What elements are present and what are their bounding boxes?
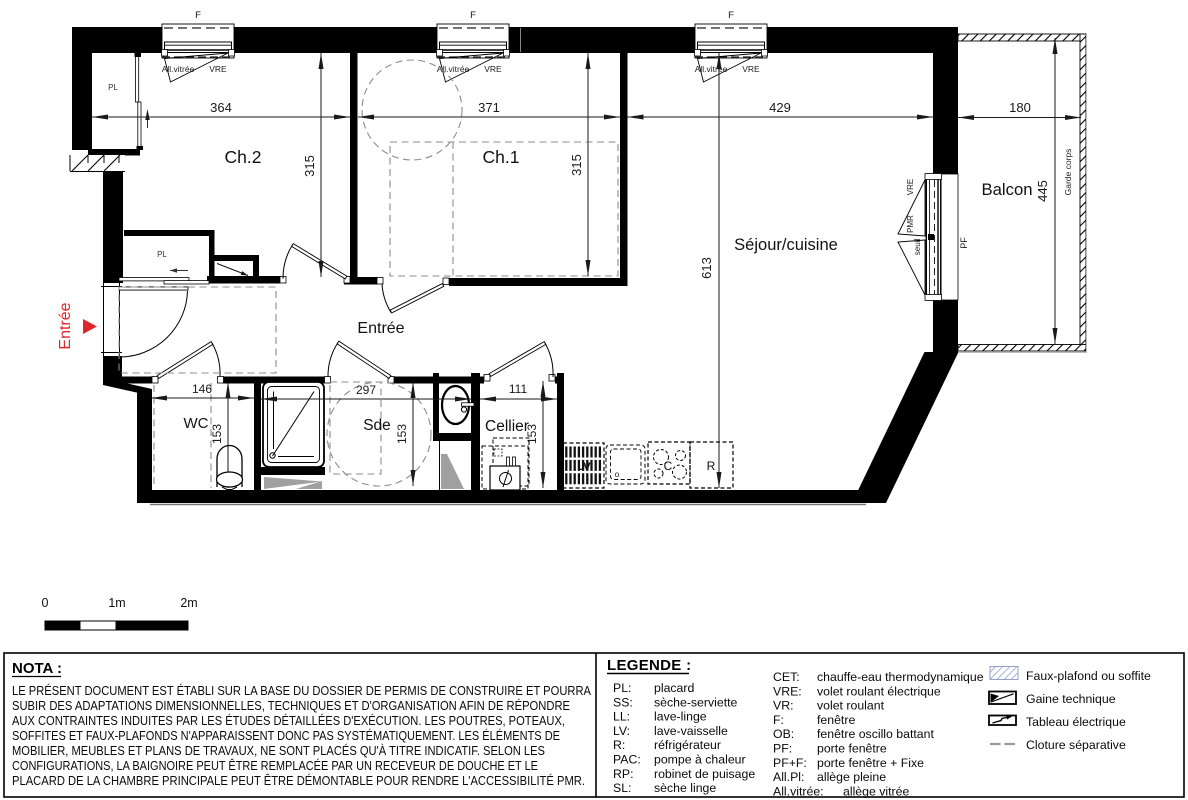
- svg-text:0: 0: [42, 596, 49, 610]
- svg-text:AUX CONTRAINTES INDUITES PAR L: AUX CONTRAINTES INDUITES PAR LES ÉTUDES …: [12, 713, 565, 728]
- svg-text:allège pleine: allège pleine: [817, 770, 886, 784]
- svg-text:429: 429: [769, 100, 791, 115]
- svg-text:180: 180: [1009, 100, 1031, 115]
- svg-text:R: R: [707, 459, 716, 473]
- svg-text:F: F: [728, 10, 734, 21]
- svg-text:F: F: [470, 10, 476, 21]
- svg-text:chauffe-eau thermodynamique: chauffe-eau thermodynamique: [817, 670, 984, 684]
- svg-text:NOTA :: NOTA :: [12, 660, 62, 677]
- svg-text:VR:: VR:: [773, 699, 794, 713]
- svg-text:Entrée: Entrée: [57, 302, 74, 349]
- svg-text:Balcon: Balcon: [981, 180, 1032, 199]
- svg-text:allège vitrée: allège vitrée: [843, 784, 909, 798]
- svg-text:Ch.2: Ch.2: [225, 147, 262, 167]
- svg-text:MOBILIER, MEUBLES ET PLANS DE: MOBILIER, MEUBLES ET PLANS DE TRAVAUX, N…: [12, 743, 545, 758]
- svg-text:315: 315: [302, 155, 317, 177]
- svg-text:2m: 2m: [180, 596, 197, 610]
- svg-text:PAC:: PAC:: [613, 753, 641, 767]
- svg-text:315: 315: [569, 154, 584, 176]
- svg-text:volet roulant: volet roulant: [817, 699, 885, 713]
- svg-text:111: 111: [509, 382, 528, 396]
- svg-text:pompe à chaleur: pompe à chaleur: [654, 753, 746, 767]
- svg-text:PL:: PL:: [613, 681, 631, 695]
- svg-text:PMR: PMR: [906, 215, 915, 233]
- svg-text:SL:: SL:: [613, 781, 631, 795]
- svg-text:SOFFITES ET FAUX-PLAFONDS N'AP: SOFFITES ET FAUX-PLAFONDS N'APPARAISSENT…: [12, 728, 560, 743]
- svg-text:LE PRÉSENT DOCUMENT EST ÉTABLI: LE PRÉSENT DOCUMENT EST ÉTABLI SUR LA BA…: [12, 683, 592, 698]
- svg-text:PL: PL: [108, 83, 118, 92]
- svg-text:Cellier: Cellier: [485, 418, 529, 435]
- svg-text:volet roulant électrique: volet roulant électrique: [817, 684, 941, 698]
- svg-text:Gaine technique: Gaine technique: [1026, 692, 1116, 706]
- svg-text:OB:: OB:: [773, 727, 794, 741]
- svg-text:C: C: [664, 459, 673, 473]
- svg-text:364: 364: [210, 100, 232, 115]
- svg-text:PLACARD DE LA CHAMBRE PRINCIPA: PLACARD DE LA CHAMBRE PRINCIPALE PEUT ÊT…: [12, 773, 585, 788]
- svg-text:445: 445: [1035, 180, 1050, 202]
- svg-text:153: 153: [210, 424, 224, 444]
- svg-text:LV:: LV:: [613, 724, 630, 738]
- svg-text:153: 153: [395, 424, 409, 444]
- svg-text:fenêtre: fenêtre: [817, 713, 855, 727]
- svg-text:réfrigérateur: réfrigérateur: [654, 738, 721, 752]
- svg-text:PF+F:: PF+F:: [773, 756, 807, 770]
- svg-text:PL: PL: [157, 250, 167, 259]
- svg-text:SS:: SS:: [613, 695, 633, 709]
- svg-text:Cloture séparative: Cloture séparative: [1026, 738, 1126, 752]
- svg-text:F:: F:: [773, 713, 784, 727]
- svg-text:sèche linge: sèche linge: [654, 781, 716, 795]
- svg-text:Garde corps: Garde corps: [1063, 149, 1073, 196]
- svg-text:fenêtre oscillo battant: fenêtre oscillo battant: [817, 727, 934, 741]
- svg-text:Entrée: Entrée: [357, 320, 404, 337]
- svg-text:sèche-serviette: sèche-serviette: [654, 695, 738, 709]
- svg-text:R:: R:: [613, 738, 625, 752]
- svg-text:o: o: [615, 470, 620, 479]
- svg-text:lave-linge: lave-linge: [654, 710, 707, 724]
- svg-text:seuil: seuil: [913, 239, 922, 256]
- svg-text:297: 297: [356, 383, 376, 397]
- svg-text:RP:: RP:: [613, 767, 634, 781]
- svg-text:placard: placard: [654, 681, 694, 695]
- svg-text:F: F: [195, 10, 201, 21]
- svg-text:All.vitrée:: All.vitrée:: [773, 784, 824, 798]
- svg-text:porte fenêtre + Fixe: porte fenêtre + Fixe: [817, 756, 924, 770]
- svg-text:CONFIGURATIONS, LA BAIGNOIRE P: CONFIGURATIONS, LA BAIGNOIRE PEUT ÊTRE R…: [12, 758, 538, 773]
- svg-text:Tableau électrique: Tableau électrique: [1026, 715, 1126, 729]
- svg-text:371: 371: [478, 100, 500, 115]
- svg-text:All.vitrée: All.vitrée: [162, 64, 195, 74]
- svg-text:VRE: VRE: [906, 179, 915, 195]
- svg-text:SUBIR DES ADAPTATIONS DIMENSIO: SUBIR DES ADAPTATIONS DIMENSIONNELLES, T…: [12, 698, 570, 713]
- svg-text:LEGENDE :: LEGENDE :: [607, 657, 691, 674]
- svg-text:VRE: VRE: [209, 64, 227, 74]
- svg-text:VRE: VRE: [484, 64, 502, 74]
- svg-text:PF:: PF:: [773, 742, 792, 756]
- svg-text:PF: PF: [959, 237, 969, 249]
- svg-text:All.vitrée: All.vitrée: [437, 64, 470, 74]
- svg-text:LL:: LL:: [613, 710, 630, 724]
- svg-text:Séjour/cuisine: Séjour/cuisine: [734, 236, 838, 254]
- svg-text:146: 146: [192, 382, 212, 396]
- svg-text:All.Pl:: All.Pl:: [773, 770, 804, 784]
- svg-text:VRE: VRE: [742, 64, 760, 74]
- svg-text:Faux-plafond ou soffite: Faux-plafond ou soffite: [1026, 669, 1151, 683]
- svg-text:Ch.1: Ch.1: [483, 147, 520, 167]
- svg-text:Sde: Sde: [363, 417, 391, 434]
- svg-text:VRE:: VRE:: [773, 684, 802, 698]
- svg-text:WC: WC: [184, 415, 209, 432]
- svg-text:1m: 1m: [108, 596, 125, 610]
- svg-text:CET:: CET:: [773, 670, 800, 684]
- svg-text:lave-vaisselle: lave-vaisselle: [654, 724, 728, 738]
- svg-text:porte fenêtre: porte fenêtre: [817, 742, 887, 756]
- svg-text:LV: LV: [577, 461, 591, 473]
- svg-text:robinet de puisage: robinet de puisage: [654, 767, 755, 781]
- svg-text:All.vitrée: All.vitrée: [695, 64, 728, 74]
- svg-text:613: 613: [699, 257, 714, 279]
